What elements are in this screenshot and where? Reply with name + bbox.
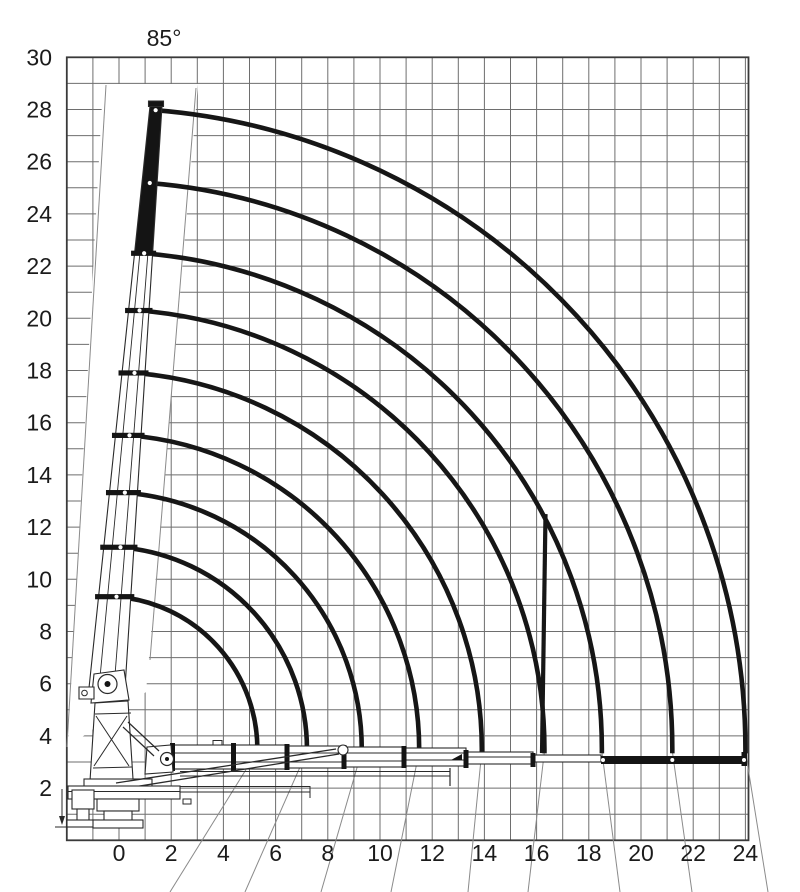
crane-part <box>149 101 164 107</box>
pin-hole <box>137 308 141 312</box>
y-axis-tick-label: 22 <box>26 253 52 279</box>
y-axis-tick-label: 10 <box>26 566 52 592</box>
y-axis-tick-label: 30 <box>26 44 52 70</box>
outrigger-leg <box>77 809 89 821</box>
x-axis-tick-label: 4 <box>217 840 230 866</box>
boom-collar <box>402 746 407 768</box>
y-axis-tick-label: 2 <box>39 775 52 801</box>
pin-hole <box>132 371 136 375</box>
y-axis-tick-label: 28 <box>26 97 52 123</box>
extension-leader-line <box>321 751 362 892</box>
reach-arc <box>156 110 746 753</box>
boom-section <box>344 747 404 767</box>
x-axis-tick-label: 18 <box>576 840 602 866</box>
working-range-chart: 2468101214161820222426283002468101214161… <box>0 0 800 892</box>
reach-arc <box>144 253 602 753</box>
boom-collar <box>531 753 536 767</box>
extension-leader-line <box>391 751 419 892</box>
boom-bracket <box>213 741 222 746</box>
x-axis-tick-label: 22 <box>680 840 706 866</box>
y-axis-tick-label: 16 <box>26 410 52 436</box>
y-axis-tick-label: 20 <box>26 305 52 331</box>
pin-hole <box>154 108 158 112</box>
pin-hole <box>670 758 674 762</box>
boom-collar <box>464 750 469 768</box>
boom-section <box>466 752 533 764</box>
x-axis-tick-label: 12 <box>419 840 445 866</box>
boom-collar <box>231 743 236 771</box>
x-axis-tick-label: 14 <box>472 840 498 866</box>
y-axis-tick-label: 18 <box>26 358 52 384</box>
y-axis-tick-label: 24 <box>26 201 52 227</box>
crane-working-range-diagram: 2468101214161820222426283002468101214161… <box>0 0 800 892</box>
reach-arc <box>129 435 419 753</box>
dimension-arrow <box>59 816 65 825</box>
pin-hole <box>142 251 146 255</box>
extension-leader-line <box>602 751 620 892</box>
outrigger-body <box>72 790 94 809</box>
pin-hole <box>127 433 131 437</box>
y-axis-tick-label: 26 <box>26 149 52 175</box>
x-axis-tick-label: 8 <box>321 840 334 866</box>
knuckle-pin <box>105 681 111 687</box>
boom-section <box>533 755 601 762</box>
x-axis-tick-label: 24 <box>733 840 759 866</box>
frame-lug <box>183 799 191 804</box>
extension-leader-line <box>468 751 482 892</box>
y-axis-tick-label: 8 <box>39 619 52 645</box>
pin-hole <box>601 758 605 762</box>
support-jack <box>97 799 139 811</box>
x-axis-tick-label: 16 <box>524 840 550 866</box>
pin-hole <box>114 595 118 599</box>
y-axis-tick-label: 6 <box>39 671 52 697</box>
x-axis-tick-label: 6 <box>269 840 282 866</box>
leader-lines <box>170 751 768 892</box>
y-axis-tick-label: 12 <box>26 514 52 540</box>
pin-hole <box>742 758 746 762</box>
x-axis-tick-label: 20 <box>628 840 654 866</box>
support-pad <box>93 820 143 828</box>
link-pin <box>165 757 169 761</box>
x-axis-tick-label: 2 <box>165 840 178 866</box>
extension-leader-line <box>672 751 692 892</box>
y-axis-tick-label: 4 <box>39 723 52 749</box>
pin-hole <box>123 491 127 495</box>
reach-arc <box>140 311 545 754</box>
cylinder-eye <box>338 745 348 755</box>
x-axis-tick-label: 0 <box>113 840 126 866</box>
pin-hole <box>118 545 122 549</box>
pin <box>82 690 88 696</box>
x-axis-tick-label: 10 <box>367 840 393 866</box>
y-axis-tick-label: 14 <box>26 462 52 488</box>
reach-arcs <box>117 110 746 753</box>
pin-hole <box>148 181 152 185</box>
boom-angle-label: 85° <box>147 25 182 51</box>
